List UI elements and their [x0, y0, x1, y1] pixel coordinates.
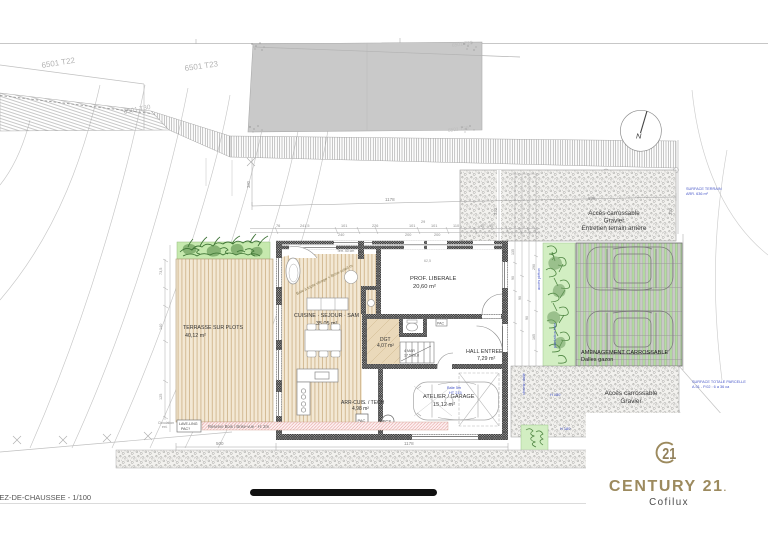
svg-text:4 MAR: 4 MAR: [404, 349, 415, 353]
svg-text:TERRASSE SUR PLOTS: TERRASSE SUR PLOTS: [183, 325, 244, 331]
svg-text:REZ-DE-CHAUSSEE - 1/100: REZ-DE-CHAUSSEE - 1/100: [0, 493, 91, 502]
svg-text:Dalles gazon: Dalles gazon: [581, 357, 613, 363]
svg-text:N: N: [636, 132, 642, 141]
svg-text:HALL ENTREE: HALL ENTREE: [466, 349, 503, 355]
svg-text:40,12 m²: 40,12 m²: [185, 333, 206, 339]
svg-text:101: 101: [431, 224, 437, 228]
svg-text:CUISINE · SEJOUR · SAM: CUISINE · SEJOUR · SAM: [294, 313, 360, 319]
svg-text:90: 90: [525, 316, 529, 320]
svg-text:H 180: H 180: [550, 392, 561, 397]
svg-text:380: 380: [246, 180, 251, 188]
svg-text:15,12 m²: 15,12 m²: [433, 402, 455, 408]
svg-text:H 180: H 180: [560, 426, 571, 431]
svg-text:90: 90: [511, 276, 515, 280]
svg-text:110: 110: [453, 224, 459, 228]
svg-text:330: 330: [668, 207, 673, 215]
svg-text:ext.: ext.: [162, 425, 168, 429]
svg-text:62,5: 62,5: [424, 259, 431, 263]
svg-text:PROF. LIBERALE: PROF. LIBERALE: [410, 276, 457, 282]
svg-text:165: 165: [532, 334, 536, 340]
svg-text:Accès carrossable: Accès carrossable: [588, 210, 640, 217]
svg-text:ARR. 636 m²: ARR. 636 m²: [686, 192, 709, 196]
svg-text:Réserve Bois / Brise-vue - H:: Réserve Bois / Brise-vue - H: 2m: [208, 424, 269, 429]
svg-text:1178: 1178: [404, 441, 414, 446]
svg-text:Cofilux: Cofilux: [649, 497, 689, 508]
svg-text:chemin dallé: chemin dallé: [521, 373, 526, 395]
svg-text:101: 101: [409, 224, 415, 228]
svg-text:17,5/28,8: 17,5/28,8: [404, 354, 419, 358]
svg-text:7,29 m²: 7,29 m²: [477, 356, 495, 362]
svg-text:241,5: 241,5: [300, 224, 310, 228]
svg-text:SURFACE TERRAIN: SURFACE TERRAIN: [686, 187, 722, 191]
svg-text:125: 125: [159, 394, 163, 400]
svg-text:200: 200: [405, 233, 411, 237]
svg-text:40: 40: [480, 224, 484, 228]
svg-text:226: 226: [372, 224, 378, 228]
svg-text:PAC?: PAC?: [181, 427, 190, 431]
svg-text:A.01 - P.02 : 6 a 36 ca: A.01 - P.02 : 6 a 36 ca: [692, 385, 730, 389]
svg-text:20,60 m²: 20,60 m²: [413, 284, 436, 290]
svg-text:4,98 m²: 4,98 m²: [352, 406, 369, 412]
svg-text:140: 140: [159, 324, 163, 330]
svg-text:SURFACE TOTALE PARCELLE: SURFACE TOTALE PARCELLE: [692, 380, 746, 384]
svg-text:accès piéton: accès piéton: [536, 268, 541, 290]
svg-text:1178: 1178: [385, 197, 395, 202]
svg-text:200: 200: [434, 233, 440, 237]
svg-text:21: 21: [662, 446, 676, 463]
svg-text:Gravier: Gravier: [620, 398, 642, 405]
svg-text:826: 826: [588, 196, 596, 201]
svg-text:4,07 m²: 4,07 m²: [377, 343, 394, 349]
svg-text:Gravier: Gravier: [604, 218, 625, 225]
svg-text:500: 500: [216, 441, 224, 446]
svg-text:320: 320: [493, 207, 498, 215]
svg-text:90: 90: [489, 224, 493, 228]
svg-text:PAC: PAC: [437, 322, 445, 326]
svg-text:CENTURY 21.: CENTURY 21.: [609, 478, 726, 495]
svg-text:76: 76: [276, 224, 280, 228]
svg-text:Entretien terrain arrière: Entretien terrain arrière: [582, 225, 647, 232]
svg-text:Accès carrossable: Accès carrossable: [604, 390, 657, 397]
svg-text:HT 215: HT 215: [449, 390, 462, 395]
svg-text:90: 90: [518, 296, 522, 300]
svg-text:101: 101: [341, 224, 347, 228]
svg-text:plantation haie: plantation haie: [552, 323, 557, 348]
svg-text:240: 240: [338, 233, 344, 237]
svg-text:LAVE-LING: LAVE-LING: [179, 422, 198, 426]
svg-text:73,5: 73,5: [159, 268, 163, 275]
svg-text:29: 29: [421, 220, 425, 224]
svg-text:135: 135: [511, 249, 515, 255]
svg-text:AMENAGEMENT CARROSSABLE: AMENAGEMENT CARROSSABLE: [581, 350, 669, 356]
svg-text:Terr. 40 cm: Terr. 40 cm: [337, 249, 354, 253]
